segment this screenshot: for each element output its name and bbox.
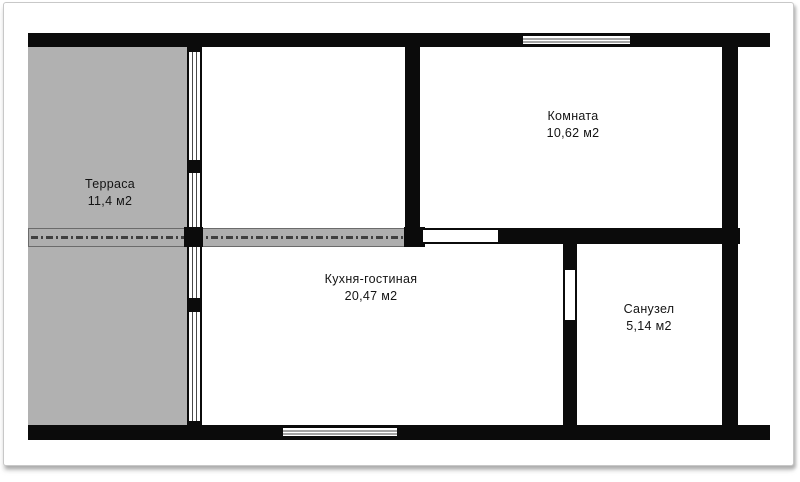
- bathroom-label: Санузел 5,14 м2: [584, 301, 714, 335]
- window-terrace-4: [187, 312, 202, 421]
- room-area: 20,47 м2: [291, 288, 451, 305]
- kitchen-label: Кухня-гостиная 20,47 м2: [291, 271, 451, 305]
- room-name: Комната: [503, 108, 643, 125]
- axis-dash-line: [31, 236, 404, 239]
- wall-bottom: [28, 425, 770, 440]
- room-name: Терраса: [50, 176, 170, 193]
- axis-band-wall-block: [184, 227, 203, 247]
- window-terrace-2: [187, 173, 202, 227]
- window-terrace-1: [187, 52, 202, 160]
- room-name: Кухня-гостиная: [291, 271, 451, 288]
- floor-plan: Терраса 11,4 м2 Комната 10,62 м2 Кухня-г…: [0, 0, 800, 482]
- room-label: Комната 10,62 м2: [503, 108, 643, 142]
- room-name: Санузел: [584, 301, 714, 318]
- window-kitchen-bottom: [283, 426, 397, 438]
- room-area: 5,14 м2: [584, 318, 714, 335]
- wall-kitchen-room: [405, 47, 420, 230]
- wall-top: [28, 33, 770, 47]
- axis-band-end-block: [404, 227, 425, 247]
- axis-band: [28, 228, 407, 247]
- door-bathroom: [563, 270, 577, 320]
- terrace-label: Терраса 11,4 м2: [50, 176, 170, 210]
- room-area: 10,62 м2: [503, 125, 643, 142]
- window-room-top: [523, 34, 630, 46]
- window-terrace-3: [187, 247, 202, 298]
- room-area: 11,4 м2: [50, 193, 170, 210]
- door-room: [423, 228, 498, 244]
